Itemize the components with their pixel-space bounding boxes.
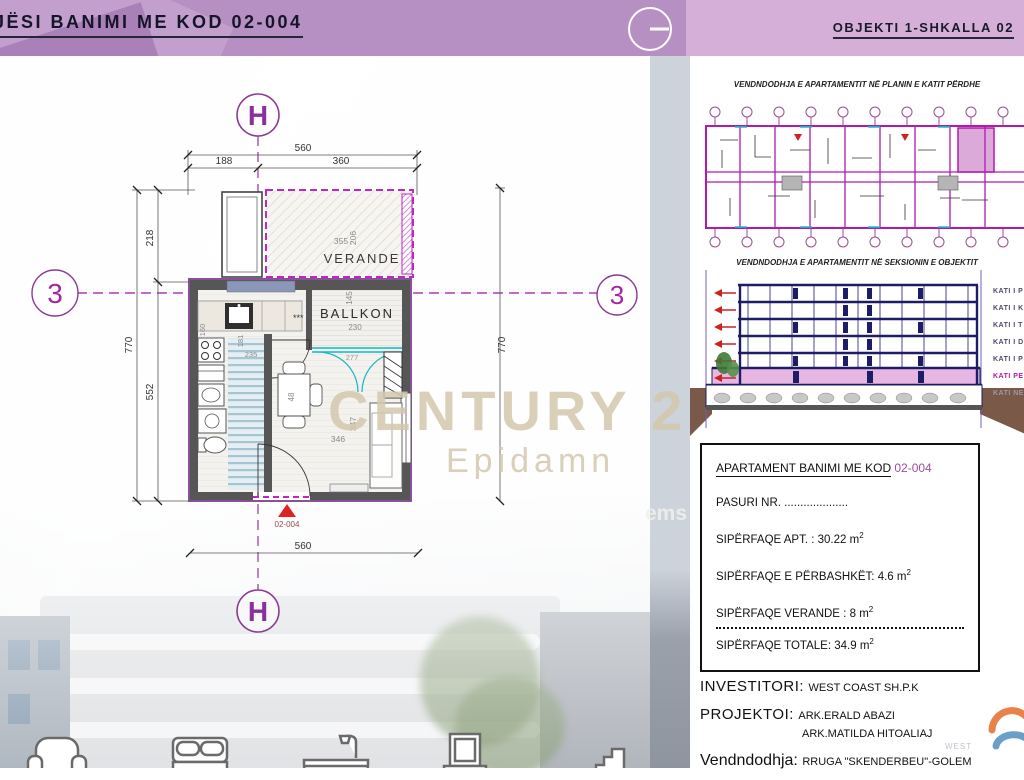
floor-label-nen: KATI NE [993, 390, 1024, 397]
svg-text:188: 188 [216, 156, 233, 167]
photo-watermark: ems [645, 502, 687, 526]
info-unit-code: 02-004 [894, 461, 931, 475]
floorplan-sheet: { "header": { "title_left": "JËSI BANIMI… [0, 0, 1024, 768]
floor-label-perdhe: KATI PE [993, 373, 1024, 380]
pasuri-line: PASURI NR. .................... [716, 497, 964, 509]
circle-dash-icon [628, 7, 672, 51]
svg-text:560: 560 [295, 541, 312, 552]
bed-icon [163, 730, 237, 768]
entry-marker [278, 504, 296, 517]
svg-text:770: 770 [124, 336, 135, 353]
highlighted-floor [712, 368, 980, 385]
area-total: SIPËRFAQE TOTALE: 34.9 m2 [716, 637, 964, 652]
floor-label: KATI I T [993, 322, 1023, 329]
armchair-icon [22, 730, 92, 768]
area-common: SIPËRFAQE E PËRBASHKËT: 4.6 m2 [716, 568, 964, 583]
apartment-info-box: APARTAMENT BANIMI ME KOD 02-004 PASURI N… [700, 443, 980, 672]
floor-label: KATI I P [993, 288, 1023, 295]
location-plan-title: VENDNDODHJA E APARTAMENTIT NË PLANIN E K… [690, 80, 1024, 89]
svg-text:218: 218 [145, 229, 156, 246]
century21-watermark: CENTURY 21. [328, 378, 690, 443]
axis-h-bottom: H [248, 596, 268, 627]
floor-label: KATI I D [993, 339, 1024, 346]
highlighted-unit [958, 128, 994, 172]
svg-text:360: 360 [333, 156, 350, 167]
epidamn-watermark: Epidamn [446, 442, 615, 481]
balcony-icon [430, 730, 500, 768]
credits-block: INVESTITORI: WEST COAST SH.P.K PROJEKTOI… [700, 678, 1024, 780]
building-section [690, 264, 1024, 436]
svg-text:***: *** [293, 313, 304, 323]
area-apt: SIPËRFAQE APT. : 30.22 m2 [716, 531, 964, 546]
svg-text:160: 160 [198, 324, 207, 337]
svg-text:552: 552 [145, 383, 156, 400]
svg-text:145: 145 [345, 291, 354, 305]
bathtub-icon [296, 730, 376, 768]
right-panel: VENDNDODHJA E APARTAMENTIT NË PLANIN E K… [690, 56, 1024, 768]
axis-h-top: H [248, 100, 268, 131]
drawing-area: VERANDE 355 206 BALLKON 145 230 277 [0, 56, 690, 768]
info-title: APARTAMENT BANIMI ME KOD 02-004 [716, 461, 964, 475]
stairs-icon [568, 730, 638, 768]
axis-3-left: 3 [47, 278, 63, 309]
key-plan [690, 100, 1024, 250]
object-title: OBJEKTI 1-SHKALLA 02 [833, 20, 1014, 39]
svg-text:355: 355 [334, 236, 348, 246]
svg-text:48: 48 [287, 392, 296, 401]
room-label-ballkon: BALLKON [320, 306, 394, 321]
svg-text:181: 181 [236, 335, 245, 348]
floor-label: KATI I K [993, 305, 1024, 312]
room-label-verande: VERANDE [324, 251, 401, 266]
svg-text:560: 560 [295, 143, 312, 154]
separator [716, 627, 964, 629]
westcoast-logo [984, 700, 1024, 762]
floor-label: KATI I P [993, 356, 1023, 363]
unit-code: 02-004 [275, 520, 300, 529]
investor-row: INVESTITORI: WEST COAST SH.P.K [700, 678, 1024, 696]
address-row: Vendndodhja: RRUGA "SKENDERBEU"-GOLEM [700, 752, 1024, 770]
sheet-title: JËSI BANIMI ME KOD 02-004 [0, 12, 303, 38]
axis-3-right: 3 [610, 280, 624, 310]
svg-text:770: 770 [497, 336, 508, 353]
svg-text:230: 230 [348, 323, 362, 332]
svg-text:277: 277 [346, 353, 359, 362]
logo-watermark: WEST [945, 742, 972, 751]
area-verande: SIPËRFAQE VERANDE : 8 m2 [716, 605, 964, 620]
svg-text:235: 235 [245, 350, 258, 359]
architect-row: PROJEKTOI: ARK.ERALD ABAZI [700, 706, 1024, 724]
svg-text:206: 206 [348, 231, 358, 245]
